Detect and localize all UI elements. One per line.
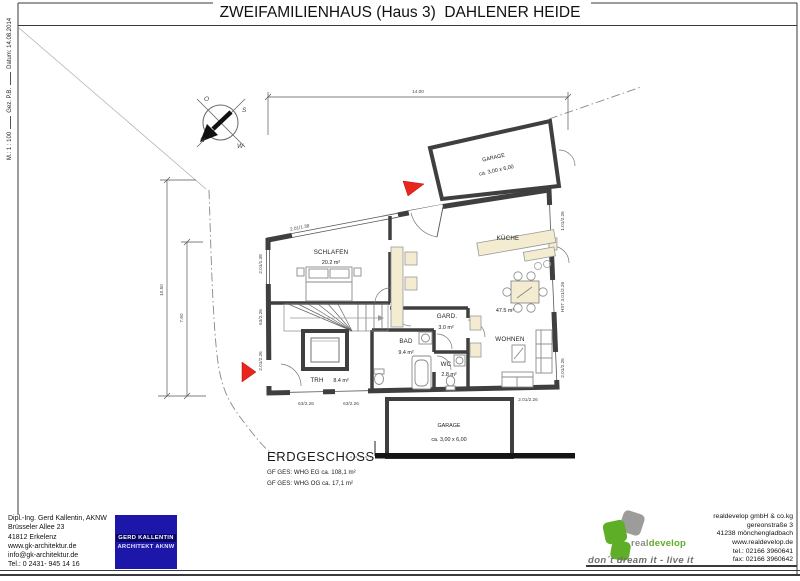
dim-left-outer: 10.50: [159, 284, 164, 296]
realdevelop-line: fax: 02166 3960642: [650, 556, 793, 565]
red-marker-entrance: [403, 181, 424, 196]
dim-bottom-a: 63/2.26: [298, 401, 314, 406]
room-area-bad: 9.4 m²: [398, 350, 413, 356]
margin-date: Datum: 14.08.2014: [7, 18, 13, 69]
room-label-wohnen: WOHNEN: [495, 336, 524, 343]
dim-right-bottom: 2.01/2.26: [560, 358, 565, 378]
architect-info: Dipl.-Ing. Gerd Kallentin, AKNW Brüssele…: [8, 514, 107, 570]
architect-line: info@gk-architektur.de: [8, 551, 107, 560]
bed: [297, 267, 361, 301]
room-area-gard: 3.0 m²: [438, 325, 453, 331]
garage-bottom: GARAGE ca. 3,00 x 6,00: [387, 399, 512, 457]
compass-n: N: [200, 137, 205, 144]
dim-left-mid: 63/2.26: [258, 309, 263, 325]
bottom-rule-1: [0, 570, 800, 571]
architect-line: 41812 Erkelenz: [8, 533, 107, 542]
realdevelop-line: realdevelop gmbH & co.kg: [650, 513, 793, 522]
garage-bottom-size: ca. 3,00 x 6,00: [431, 437, 466, 443]
property-boundary-ne: [549, 87, 641, 119]
dim-left-inner: 7.50: [179, 313, 184, 323]
realdevelop-line: tel.: 02166 3960641: [650, 548, 793, 557]
elevator-shaft: [303, 331, 347, 369]
floor-summary-2: GF GES: WHG OG ca. 17,1 m²: [267, 480, 353, 487]
dim-bottom-b: 63/2.26: [343, 401, 359, 406]
room-area-wc: 2.8 m²: [441, 372, 456, 378]
room-label-schlafen: SCHLAFEN: [314, 249, 349, 256]
room-label-gard: GARD.: [437, 313, 458, 320]
compass-o: O: [204, 96, 209, 103]
bottom-rule-2: [0, 574, 800, 576]
margin-note: M.: 1 : 100Gez. P.B.Datum: 14.08.2014: [3, 14, 17, 164]
architect-line: Brüsseler Allee 23: [8, 523, 107, 532]
compass-w: W: [237, 143, 244, 150]
room-label-trh: TRH: [310, 377, 323, 384]
realdevelop-line: gereonstraße 3: [650, 522, 793, 531]
tagline-underline: [586, 565, 797, 567]
architect-line: www.gk-architektur.de: [8, 542, 107, 551]
room-area-trh: 8.4 m²: [333, 378, 348, 384]
red-marker-side: [242, 362, 256, 382]
site-line: [19, 28, 206, 189]
room-label-bad: BAD: [399, 338, 413, 345]
realdevelop-line: www.realdevelop.de: [650, 539, 793, 548]
page-title: ZWEIFAMILIENHAUS (Haus 3) DAHLENER HEIDE: [0, 4, 800, 22]
dim-left-top: 2.01/1.38: [258, 254, 263, 274]
floor-plan-canvas: O S N W 14.00 10.50 7.50: [0, 0, 800, 581]
architect-logo-title: ARCHITEKT AKNW: [117, 544, 174, 550]
floor-summary-1: GF GES: WHG EG ca. 108,1 m²: [267, 469, 356, 476]
architect-logo: GERD KALLENTIN ARCHITEKT AKNW: [115, 515, 177, 569]
margin-scale: M.: 1 : 100: [7, 132, 13, 160]
room-area-wohnen: 47.5 m²: [496, 308, 514, 314]
floor-label: ERDGESCHOSS: [267, 449, 375, 464]
realdevelop-line: 41238 mönchengladbach: [650, 530, 793, 539]
north-arrow: O S N W: [197, 96, 247, 150]
dim-top: 14.00: [412, 89, 424, 94]
realdevelop-logo-real: real: [631, 538, 649, 549]
margin-drawn-by: Gez. P.B.: [7, 88, 13, 113]
compass-s: S: [242, 107, 247, 114]
garage-top: GARAGE ca. 3,00 x 6,00: [430, 121, 575, 199]
dim-right-mid: HST 3.01/2.26: [560, 282, 565, 313]
realdevelop-info: realdevelop gmbH & co.kg gereonstraße 3 …: [650, 513, 793, 565]
drawing-sheet: O S N W 14.00 10.50 7.50: [0, 0, 800, 581]
architect-line: Dipl.-Ing. Gerd Kallentin, AKNW: [8, 514, 107, 523]
dim-right-top: 1.01/2.26: [560, 211, 565, 231]
room-label-wc: WC: [441, 361, 452, 368]
architect-logo-name: GERD KALLENTIN: [116, 534, 175, 542]
dim-left-bottom: 2.01/2.26: [258, 351, 263, 371]
dim-bottom-right: 2.01/2.26: [518, 397, 538, 402]
garage-bottom-label: GARAGE: [437, 423, 460, 429]
room-area-schlafen: 20.2 m²: [322, 260, 340, 266]
room-label-kueche: KÜCHE: [497, 235, 520, 242]
architect-line: Tel.: 0 2431- 945 14 16: [8, 560, 107, 569]
